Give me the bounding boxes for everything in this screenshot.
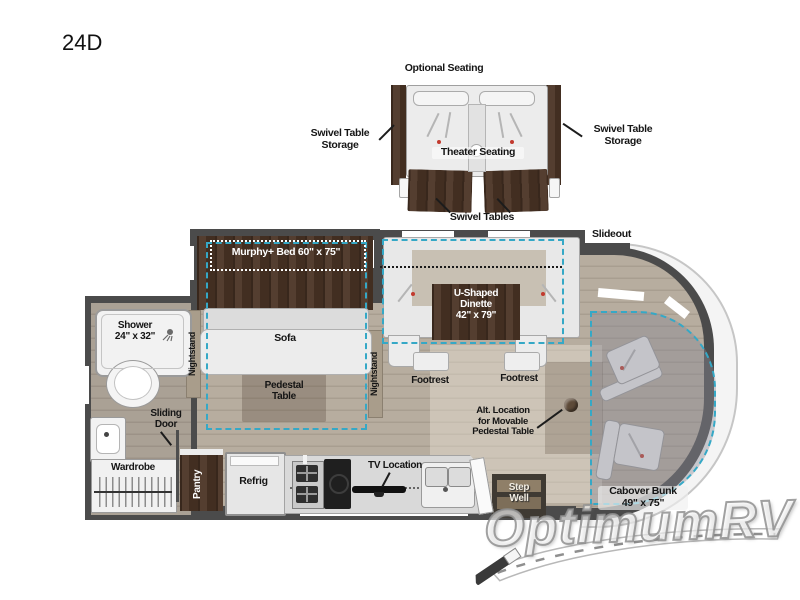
- cooktop-ring: [329, 474, 349, 494]
- plan-code: 24D: [62, 30, 102, 56]
- swivel-table-right: [483, 169, 548, 213]
- stove-knob: [303, 455, 307, 464]
- nightstand-right-label: Nightstand: [369, 334, 379, 414]
- window-slot: [84, 366, 89, 404]
- dinette-label: U-Shaped Dinette 42" x 79": [430, 288, 522, 322]
- cabover-bunk-label: Cabover Bunk 49" x 75": [598, 486, 688, 510]
- seatbelt-buckle: [437, 140, 441, 144]
- seatbelt-buckle: [510, 140, 514, 144]
- theater-console: [468, 104, 486, 172]
- nightstand-left-label: Nightstand: [187, 314, 197, 394]
- sink-bowl-left: [425, 467, 448, 487]
- swivel-storage-left-label: Swivel Table Storage: [302, 128, 378, 152]
- tv-location-label: TV Location: [366, 460, 424, 471]
- floorplan-page: 24D Optional Seating Theater Seating Swi…: [0, 0, 800, 600]
- swivel-tables-label: Swivel Tables: [434, 212, 530, 224]
- sliding-door: [176, 430, 179, 502]
- swivel-table-support-right: [549, 178, 560, 198]
- movable-table-icon: [564, 398, 578, 412]
- sliding-door-label: Sliding Door: [140, 408, 192, 430]
- sink-faucet: [443, 487, 448, 492]
- swivel-table-storage-right: [546, 85, 561, 185]
- murphy-bed-label: Murphy+ Bed 60" x 75": [205, 247, 367, 259]
- burner-grate: [297, 472, 317, 474]
- theater-seating-label: Theater Seating: [432, 147, 524, 159]
- shower-label: Shower 24" x 32": [103, 320, 167, 342]
- burner-grate: [297, 493, 317, 495]
- table-extension-dotted-line: [380, 266, 562, 268]
- refrig-label: Refrig: [228, 476, 279, 488]
- wardrobe-rod: [94, 491, 172, 493]
- theater-headrest-left: [413, 91, 469, 106]
- bath-faucet: [104, 432, 109, 437]
- swivel-table-left: [407, 169, 472, 213]
- pointer-line: [563, 123, 583, 137]
- theater-headrest-right: [479, 91, 535, 106]
- toilet-lid: [114, 366, 152, 400]
- slideout-label: Slideout: [592, 229, 644, 241]
- footrest-right-label: Footrest: [496, 373, 542, 384]
- alt-table-label: Alt. Location for Movable Pedestal Table: [466, 406, 540, 438]
- footrest-left: [413, 352, 449, 371]
- sink-bowl-right: [448, 467, 471, 487]
- swivel-storage-right-label: Swivel Table Storage: [584, 124, 662, 148]
- optional-seating-label: Optional Seating: [388, 63, 500, 75]
- wardrobe-label: Wardrobe: [95, 462, 171, 473]
- window-slot: [189, 246, 194, 280]
- pantry-label: Pantry: [192, 462, 203, 506]
- swivel-table-storage-left: [391, 85, 406, 185]
- footrest-right: [504, 352, 540, 371]
- sofa-label: Sofa: [255, 333, 315, 345]
- tv-stand: [374, 492, 384, 497]
- footrest-left-label: Footrest: [408, 375, 452, 386]
- pedestal-table-label: Pedestal Table: [252, 380, 316, 402]
- bath-sink-bowl: [96, 424, 120, 454]
- refrigerator-door: [230, 456, 279, 466]
